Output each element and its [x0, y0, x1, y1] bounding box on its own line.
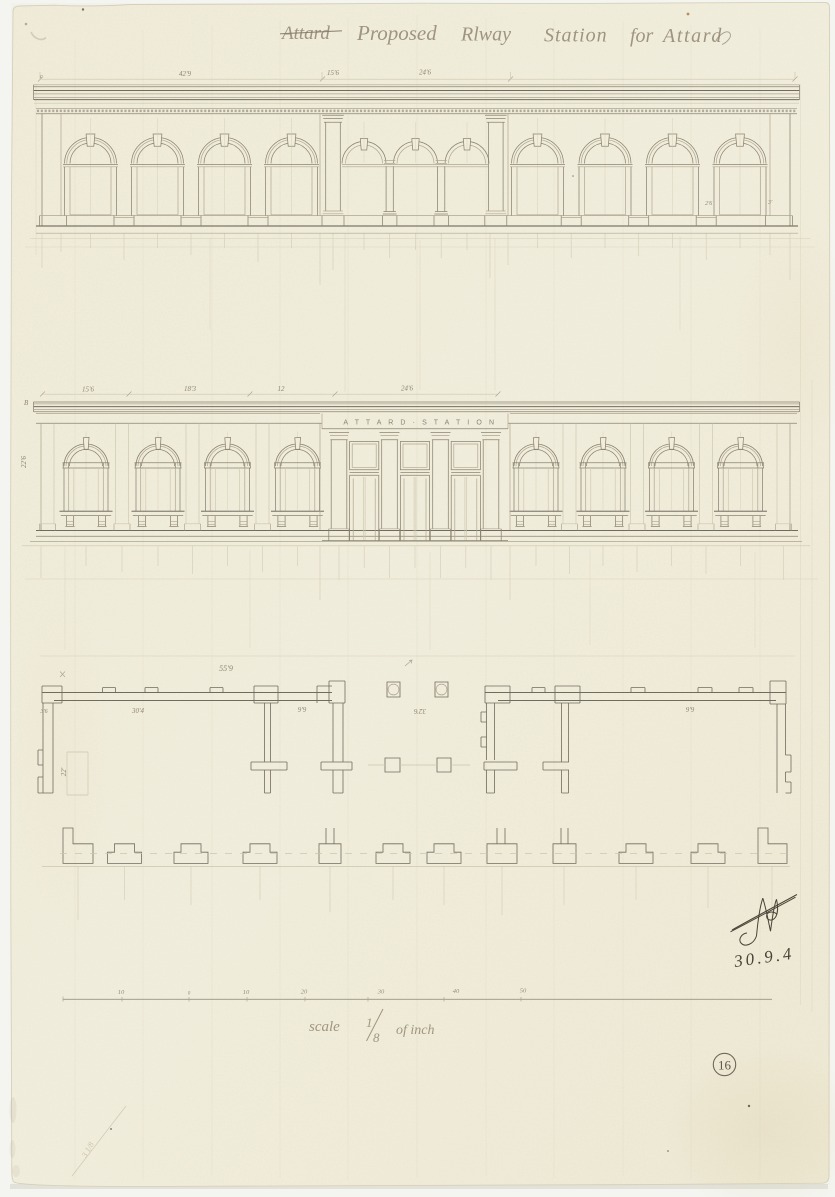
svg-text:Attard: Attard: [661, 25, 723, 47]
svg-text:22'6: 22'6: [20, 456, 28, 468]
svg-text:18'3: 18'3: [184, 385, 196, 393]
svg-text:for: for: [630, 25, 654, 47]
svg-text:scale: scale: [309, 1019, 340, 1035]
svg-text:50: 50: [520, 988, 527, 995]
svg-text:Rlway: Rlway: [460, 24, 511, 46]
svg-text:of inch: of inch: [396, 1023, 435, 1038]
svg-text:Station: Station: [544, 25, 608, 47]
svg-text:3': 3': [767, 200, 773, 206]
svg-text:15'6: 15'6: [82, 386, 94, 394]
svg-text:40: 40: [453, 988, 460, 995]
svg-text:12: 12: [278, 385, 286, 393]
svg-text:30: 30: [377, 989, 385, 996]
svg-text:55'9: 55'9: [219, 664, 233, 673]
svg-text:c: c: [40, 74, 43, 80]
svg-text:20: 20: [301, 989, 308, 996]
svg-text:16: 16: [718, 1058, 732, 1073]
svg-text:2'6: 2'6: [705, 201, 712, 207]
svg-text:32'6: 32'6: [414, 707, 427, 715]
svg-text:1: 1: [366, 1015, 373, 1030]
svg-text:24'6: 24'6: [419, 69, 431, 77]
svg-text:8: 8: [373, 1030, 380, 1045]
svg-text:22': 22': [60, 767, 68, 776]
svg-text:9'9: 9'9: [686, 706, 695, 714]
svg-text:B: B: [24, 399, 29, 407]
svg-text:10: 10: [118, 989, 125, 996]
svg-text:9'9: 9'9: [298, 706, 307, 714]
svg-text:24'6: 24'6: [401, 385, 413, 393]
svg-text:A T T A R D · S T A T I O N: A T T A R D · S T A T I O N: [343, 420, 496, 427]
svg-text:30'4: 30'4: [131, 707, 144, 715]
svg-text:15'6: 15'6: [327, 69, 339, 77]
svg-text:3'6: 3'6: [39, 709, 47, 715]
svg-text:10: 10: [243, 989, 250, 996]
svg-text:Proposed: Proposed: [356, 21, 437, 45]
svg-text:42'9: 42'9: [179, 70, 191, 78]
